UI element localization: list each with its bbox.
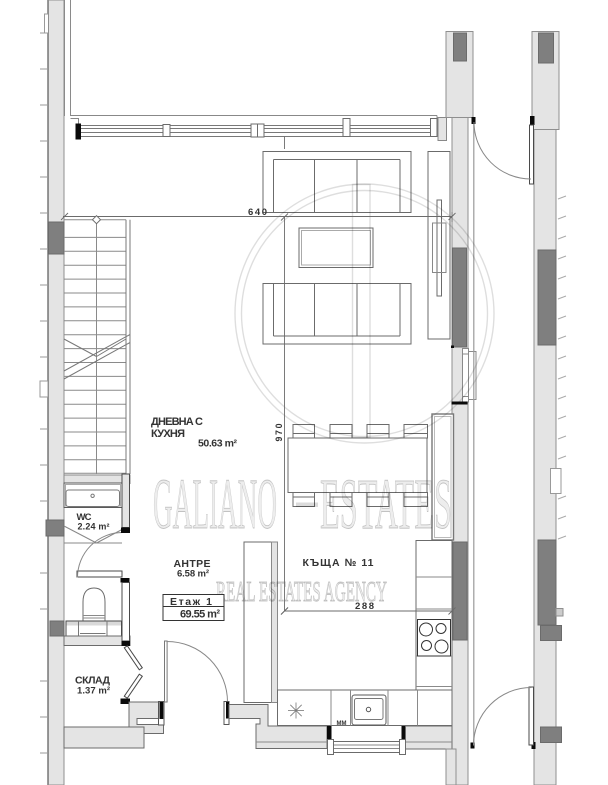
svg-text:GALIANO: GALIANO bbox=[153, 464, 277, 544]
svg-text:970: 970 bbox=[274, 423, 284, 441]
svg-text:MM: MM bbox=[337, 721, 347, 727]
svg-text:1.37 m²: 1.37 m² bbox=[77, 686, 110, 697]
svg-text:6.58 m²: 6.58 m² bbox=[177, 569, 209, 580]
svg-text:640: 640 bbox=[248, 207, 267, 218]
svg-text:ESTATES: ESTATES bbox=[320, 464, 452, 544]
svg-text:Етаж 1: Етаж 1 bbox=[170, 596, 212, 608]
svg-text:2.24 m²: 2.24 m² bbox=[78, 522, 110, 532]
svg-text:50.63 m²: 50.63 m² bbox=[198, 438, 238, 450]
svg-text:КУХНЯ: КУХНЯ bbox=[151, 428, 185, 440]
svg-text:ДНЕВНА С: ДНЕВНА С bbox=[151, 416, 203, 428]
svg-text:69.55 m²: 69.55 m² bbox=[180, 609, 220, 621]
svg-text:288: 288 bbox=[355, 601, 374, 612]
svg-text:КЪЩА № 11: КЪЩА № 11 bbox=[303, 557, 374, 569]
